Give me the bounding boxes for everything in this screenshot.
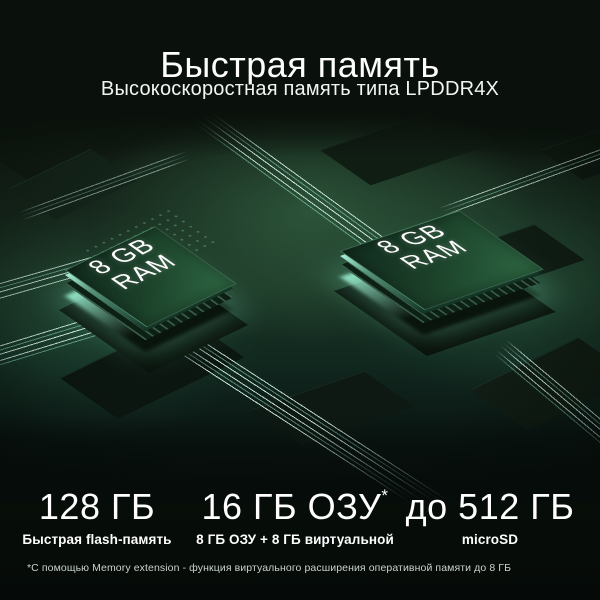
spec-ram: 16 ГБ ОЗУ* 8 ГБ ОЗУ + 8 ГБ виртуальной xyxy=(196,487,394,547)
promo-banner: Быстрая память Высокоскоростная память т… xyxy=(0,0,600,600)
spec-value: до 512 ГБ xyxy=(406,487,575,525)
page-subtitle: Высокоскоростная память типа LPDDR4X xyxy=(0,78,600,101)
spec-value: 16 ГБ ОЗУ* xyxy=(196,487,394,525)
circuit-board-hero: 8 GB RAM 8 GB RAM xyxy=(0,110,600,502)
footnote: *С помощью Memory extension - функция ви… xyxy=(27,562,587,574)
board-block xyxy=(320,111,484,185)
spec-value-text: 16 ГБ ОЗУ xyxy=(201,486,381,527)
spec-label: Быстрая flash-память xyxy=(22,532,171,547)
spec-value-text: 128 ГБ xyxy=(39,486,155,527)
spec-value-text: до 512 ГБ xyxy=(406,486,575,527)
spec-label: microSD xyxy=(406,532,575,547)
spec-value: 128 ГБ xyxy=(22,487,171,525)
spec-flash-storage: 128 ГБ Быстрая flash-память xyxy=(22,487,171,547)
specs-row: 128 ГБ Быстрая flash-память 16 ГБ ОЗУ* 8… xyxy=(0,487,600,547)
spec-microsd: до 512 ГБ microSD xyxy=(406,487,575,547)
spec-label: 8 ГБ ОЗУ + 8 ГБ виртуальной xyxy=(196,532,394,547)
spec-asterisk: * xyxy=(381,486,388,505)
